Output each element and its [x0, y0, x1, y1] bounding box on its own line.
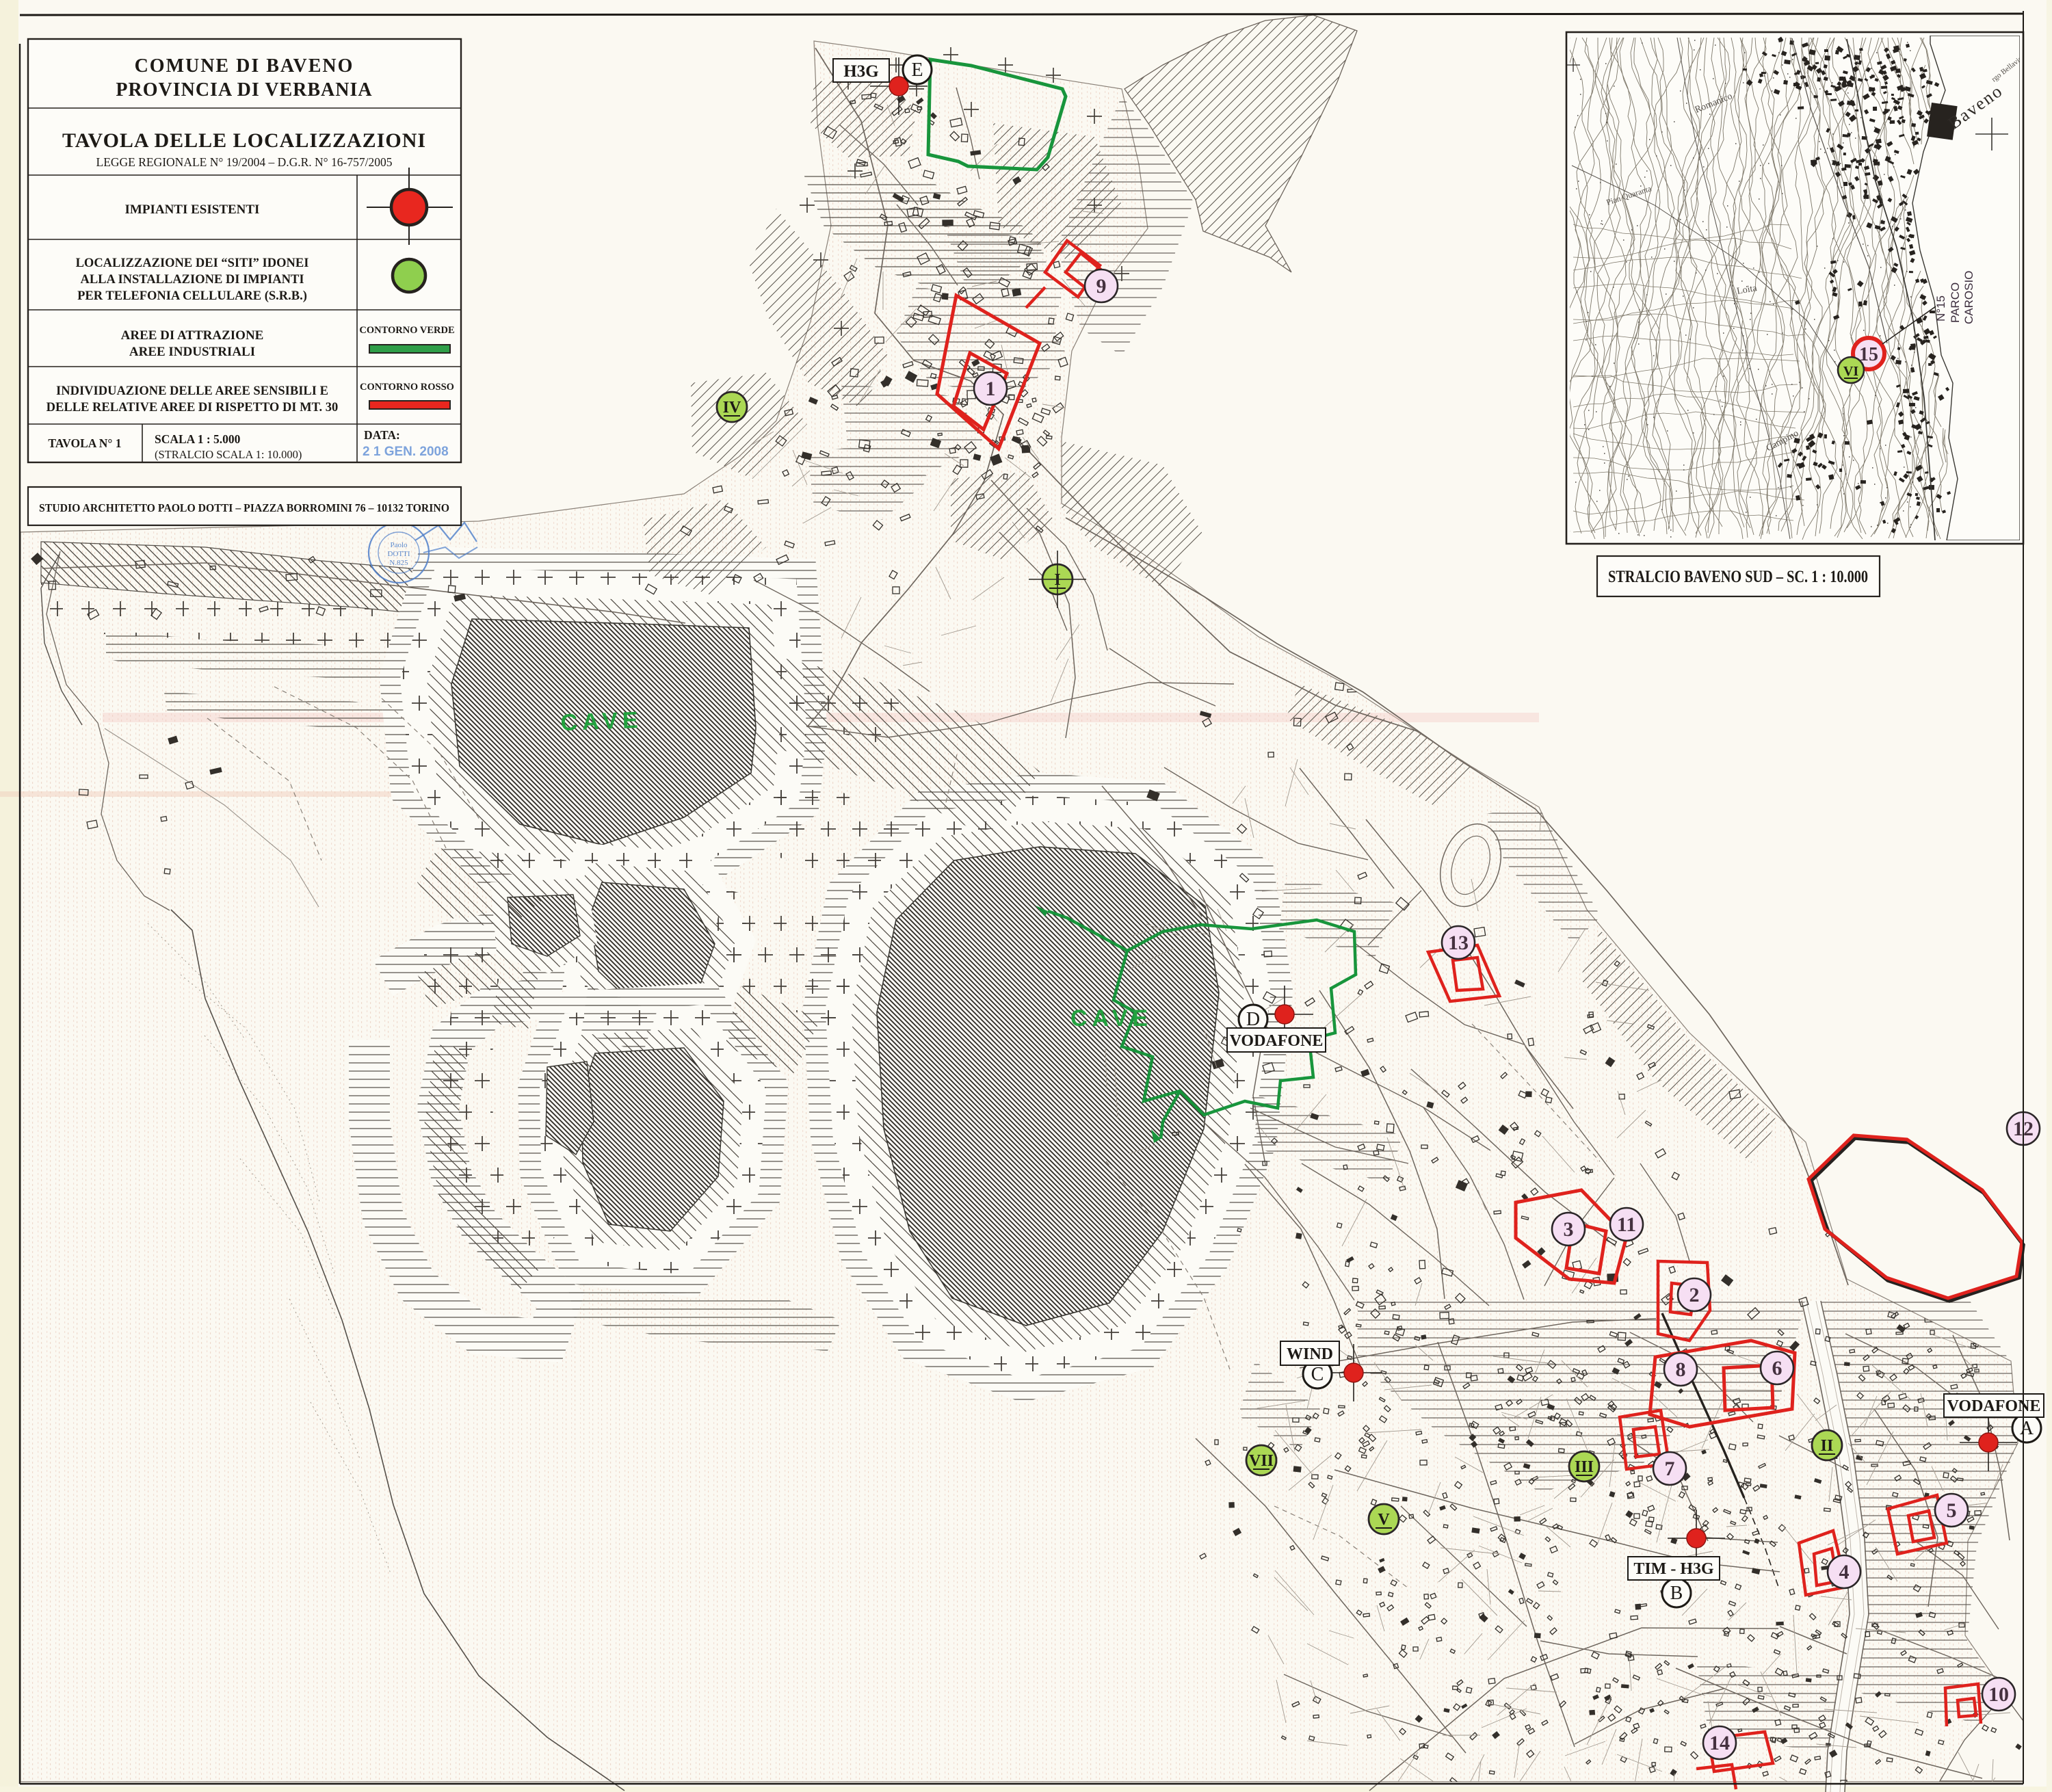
svg-text:IV: IV — [723, 399, 741, 417]
svg-text:II: II — [1821, 1437, 1834, 1455]
svg-text:DELLE RELATIVE AREE DI RISPETT: DELLE RELATIVE AREE DI RISPETTO DI MT. 3… — [47, 401, 339, 414]
svg-text:H3G: H3G — [843, 62, 878, 81]
svg-text:N.825: N.825 — [389, 559, 408, 567]
svg-text:13: 13 — [1448, 932, 1469, 954]
svg-text:2: 2 — [1689, 1284, 1700, 1306]
svg-text:DATA:: DATA: — [364, 428, 400, 442]
svg-text:VODAFONE: VODAFONE — [1230, 1032, 1324, 1050]
svg-text:CONTORNO VERDE: CONTORNO VERDE — [359, 325, 454, 336]
svg-text:A: A — [2020, 1418, 2034, 1439]
svg-text:PROVINCIA DI VERBANIA: PROVINCIA DI VERBANIA — [116, 79, 372, 101]
svg-text:VODAFONE: VODAFONE — [1947, 1397, 2041, 1415]
svg-text:11: 11 — [1617, 1213, 1636, 1236]
svg-text:10: 10 — [1988, 1683, 2009, 1706]
svg-text:8: 8 — [1676, 1358, 1686, 1381]
svg-text:CAVE: CAVE — [1070, 1005, 1153, 1031]
svg-text:III: III — [1575, 1458, 1594, 1476]
svg-text:PARCO: PARCO — [1949, 282, 1962, 323]
svg-text:3: 3 — [1564, 1218, 1574, 1241]
svg-text:STRALCIO BAVENO SUD – SC. 1 :: STRALCIO BAVENO SUD – SC. 1 : 10.000 — [1608, 568, 1868, 586]
svg-text:CAVE: CAVE — [560, 707, 643, 736]
svg-text:ALLA INSTALLAZIONE DI IMPIAN: ALLA INSTALLAZIONE DI IMPIANTI — [80, 273, 304, 287]
svg-text:LEGGE REGIONALE N° 19/2004 – D: LEGGE REGIONALE N° 19/2004 – D.G.R. N° 1… — [96, 155, 393, 169]
svg-text:4: 4 — [1839, 1561, 1850, 1583]
svg-text:(STRALCIO SCALA 1: 10.000): (STRALCIO SCALA 1: 10.000) — [155, 448, 302, 461]
svg-text:PER TELEFONIA CELLULARE (S.R.B: PER TELEFONIA CELLULARE (S.R.B.) — [77, 289, 307, 303]
svg-text:AREE INDUSTRIALI: AREE INDUSTRIALI — [129, 345, 255, 359]
svg-text:TAVOLA DELLE LOCALIZZAZIONI: TAVOLA DELLE LOCALIZZAZIONI — [62, 129, 426, 152]
svg-text:14: 14 — [1709, 1732, 1730, 1754]
svg-text:CAROSIO: CAROSIO — [1962, 271, 1975, 324]
svg-text:WIND: WIND — [1287, 1345, 1333, 1363]
svg-text:INDIVIDUAZIONE DELLE AREE SENS: INDIVIDUAZIONE DELLE AREE SENSIBILI E — [56, 384, 328, 398]
svg-text:COMUNE DI BAVENO: COMUNE DI BAVENO — [135, 55, 354, 77]
svg-text:Paolo: Paolo — [390, 541, 408, 549]
svg-text:1: 1 — [986, 378, 996, 400]
svg-text:TIM - H3G: TIM - H3G — [1633, 1560, 1714, 1578]
svg-text:B: B — [1670, 1583, 1683, 1604]
svg-text:AREE DI ATTRAZIONE: AREE DI ATTRAZIONE — [121, 328, 264, 343]
svg-text:CONTORNO ROSSO: CONTORNO ROSSO — [360, 382, 454, 393]
svg-text:LOCALIZZAZIONE DEI “SITI” IDON: LOCALIZZAZIONE DEI “SITI” IDONEI — [76, 256, 309, 270]
svg-text:SCALA 1 : 5.000: SCALA 1 : 5.000 — [155, 432, 241, 446]
svg-text:9: 9 — [1096, 275, 1107, 298]
svg-text:TAVOLA N° 1: TAVOLA N° 1 — [48, 436, 121, 450]
svg-text:IMPIANTI ESISTENTI: IMPIANTI ESISTENTI — [125, 202, 260, 217]
svg-text:2 1 GEN. 2008: 2 1 GEN. 2008 — [363, 445, 449, 459]
svg-text:VI: VI — [1843, 364, 1858, 379]
svg-text:C: C — [1311, 1364, 1324, 1385]
svg-text:N°15: N°15 — [1934, 295, 1947, 321]
svg-text:VII: VII — [1249, 1452, 1274, 1470]
svg-text:6: 6 — [1772, 1357, 1783, 1380]
svg-text:E: E — [911, 60, 923, 81]
svg-text:7: 7 — [1665, 1458, 1675, 1480]
svg-text:STUDIO ARCHITETTO PAOLO DOTTI: STUDIO ARCHITETTO PAOLO DOTTI – PIAZZA B… — [39, 501, 449, 514]
svg-text:DOTTI: DOTTI — [388, 550, 410, 558]
svg-text:V: V — [1378, 1511, 1390, 1529]
svg-text:D: D — [1246, 1009, 1260, 1030]
svg-text:5: 5 — [1947, 1499, 1957, 1522]
